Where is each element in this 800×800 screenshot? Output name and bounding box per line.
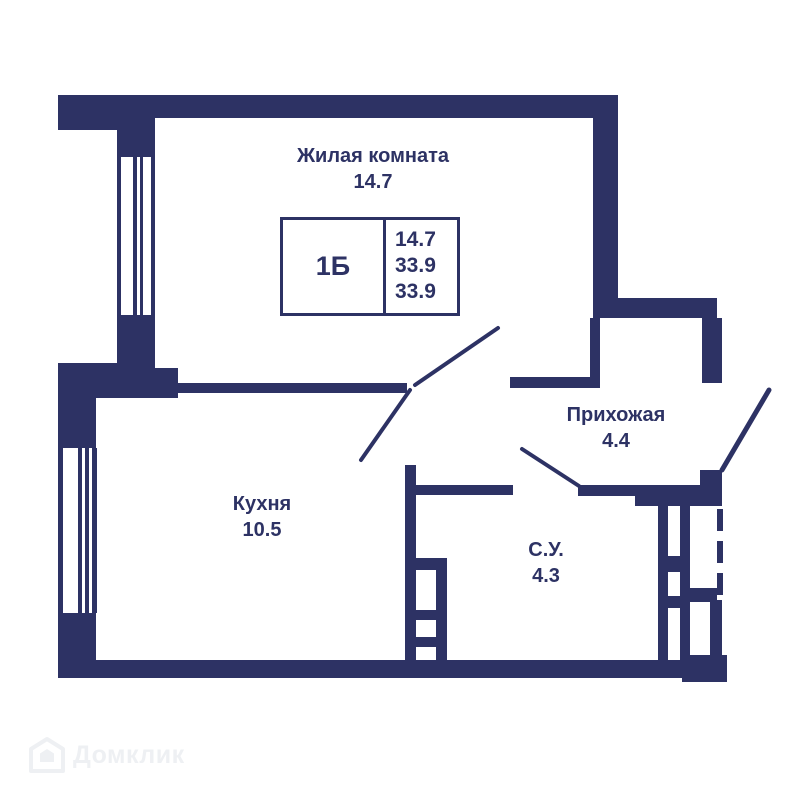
living-window-line-3 [140, 157, 143, 315]
wall-hall-left-riser [590, 318, 600, 387]
unit-area-2: 33.9 [395, 253, 457, 279]
bath-label: С.У. 4.3 [528, 537, 564, 589]
kitchen-window-line-1 [58, 448, 63, 613]
watermark-label: Домклик [73, 741, 185, 770]
hall-name: Прихожая [567, 402, 666, 428]
bath-name: С.У. [528, 537, 564, 563]
living-room-label: Жилая комната 14.7 [297, 143, 449, 195]
living-window-line-2 [133, 157, 137, 315]
kitchen-window-line-2 [78, 448, 82, 613]
wall-bath-top-left [408, 485, 513, 495]
house-logo-icon [28, 736, 66, 774]
dashed-opening-dash-2 [717, 541, 723, 563]
niche-box-right-rail [710, 600, 722, 658]
wall-bottom [58, 660, 690, 678]
wall-divider-stub [155, 368, 178, 398]
floor-plan: Жилая комната 14.7 Кухня 10.5 Прихожая 4… [0, 0, 800, 800]
niche-box-top-bar [680, 588, 717, 602]
wall-hall-bottom-thick [635, 485, 722, 506]
wall-living-right [593, 118, 618, 318]
bath-area: 4.3 [528, 563, 564, 589]
kitchen-door-leaf [361, 390, 410, 460]
shaft-left-rung-2 [416, 637, 436, 647]
wall-pier-below-living-window [117, 315, 155, 398]
shaft-right-rung-1 [668, 556, 680, 572]
shaft-right-right-rail [680, 505, 690, 660]
unit-areas: 14.7 33.9 33.9 [386, 220, 457, 313]
unit-area-3: 33.9 [395, 279, 457, 305]
wall-entry-corner-block [700, 470, 722, 487]
watermark: Домклик [28, 736, 185, 774]
dashed-opening-dash-3 [717, 573, 723, 595]
floor-plan-geometry [0, 0, 800, 800]
wall-top [152, 95, 618, 118]
wall-bath-top-right [578, 485, 640, 496]
kitchen-window-line-3 [85, 448, 89, 613]
kitchen-window-line-4 [92, 448, 97, 613]
unit-info-box: 1Б 14.7 33.9 33.9 [280, 217, 460, 316]
hall-label: Прихожая 4.4 [567, 402, 666, 454]
wall-living-kitchen-divider [178, 383, 407, 393]
dashed-opening-dash-1 [717, 509, 723, 531]
living-door-leaf [415, 328, 498, 385]
bath-door-leaf [522, 449, 579, 486]
wall-above-kitchen-window [58, 398, 96, 448]
wall-pier-above-living-window [117, 95, 155, 157]
kitchen-label: Кухня 10.5 [233, 491, 291, 543]
wall-living-bottom-segment [510, 377, 600, 388]
shaft-right-left-rail [658, 505, 668, 660]
wall-left-step-block [58, 363, 117, 398]
living-window-line-1 [117, 157, 121, 315]
kitchen-name: Кухня [233, 491, 291, 517]
living-room-area: 14.7 [297, 169, 449, 195]
unit-living-area: 14.7 [395, 227, 457, 253]
shaft-left-rung-1 [416, 610, 436, 620]
kitchen-area: 10.5 [233, 517, 291, 543]
shaft-right-rung-2 [668, 596, 680, 608]
shaft-left-right-rail [436, 558, 447, 660]
unit-number: 1Б [283, 220, 383, 313]
hall-area: 4.4 [567, 428, 666, 454]
entry-door-leaf [722, 390, 769, 470]
wall-entry-upper [702, 318, 722, 383]
living-window-line-4 [151, 157, 155, 315]
wall-hall-top-bar [593, 298, 717, 318]
living-room-name: Жилая комната [297, 143, 449, 169]
